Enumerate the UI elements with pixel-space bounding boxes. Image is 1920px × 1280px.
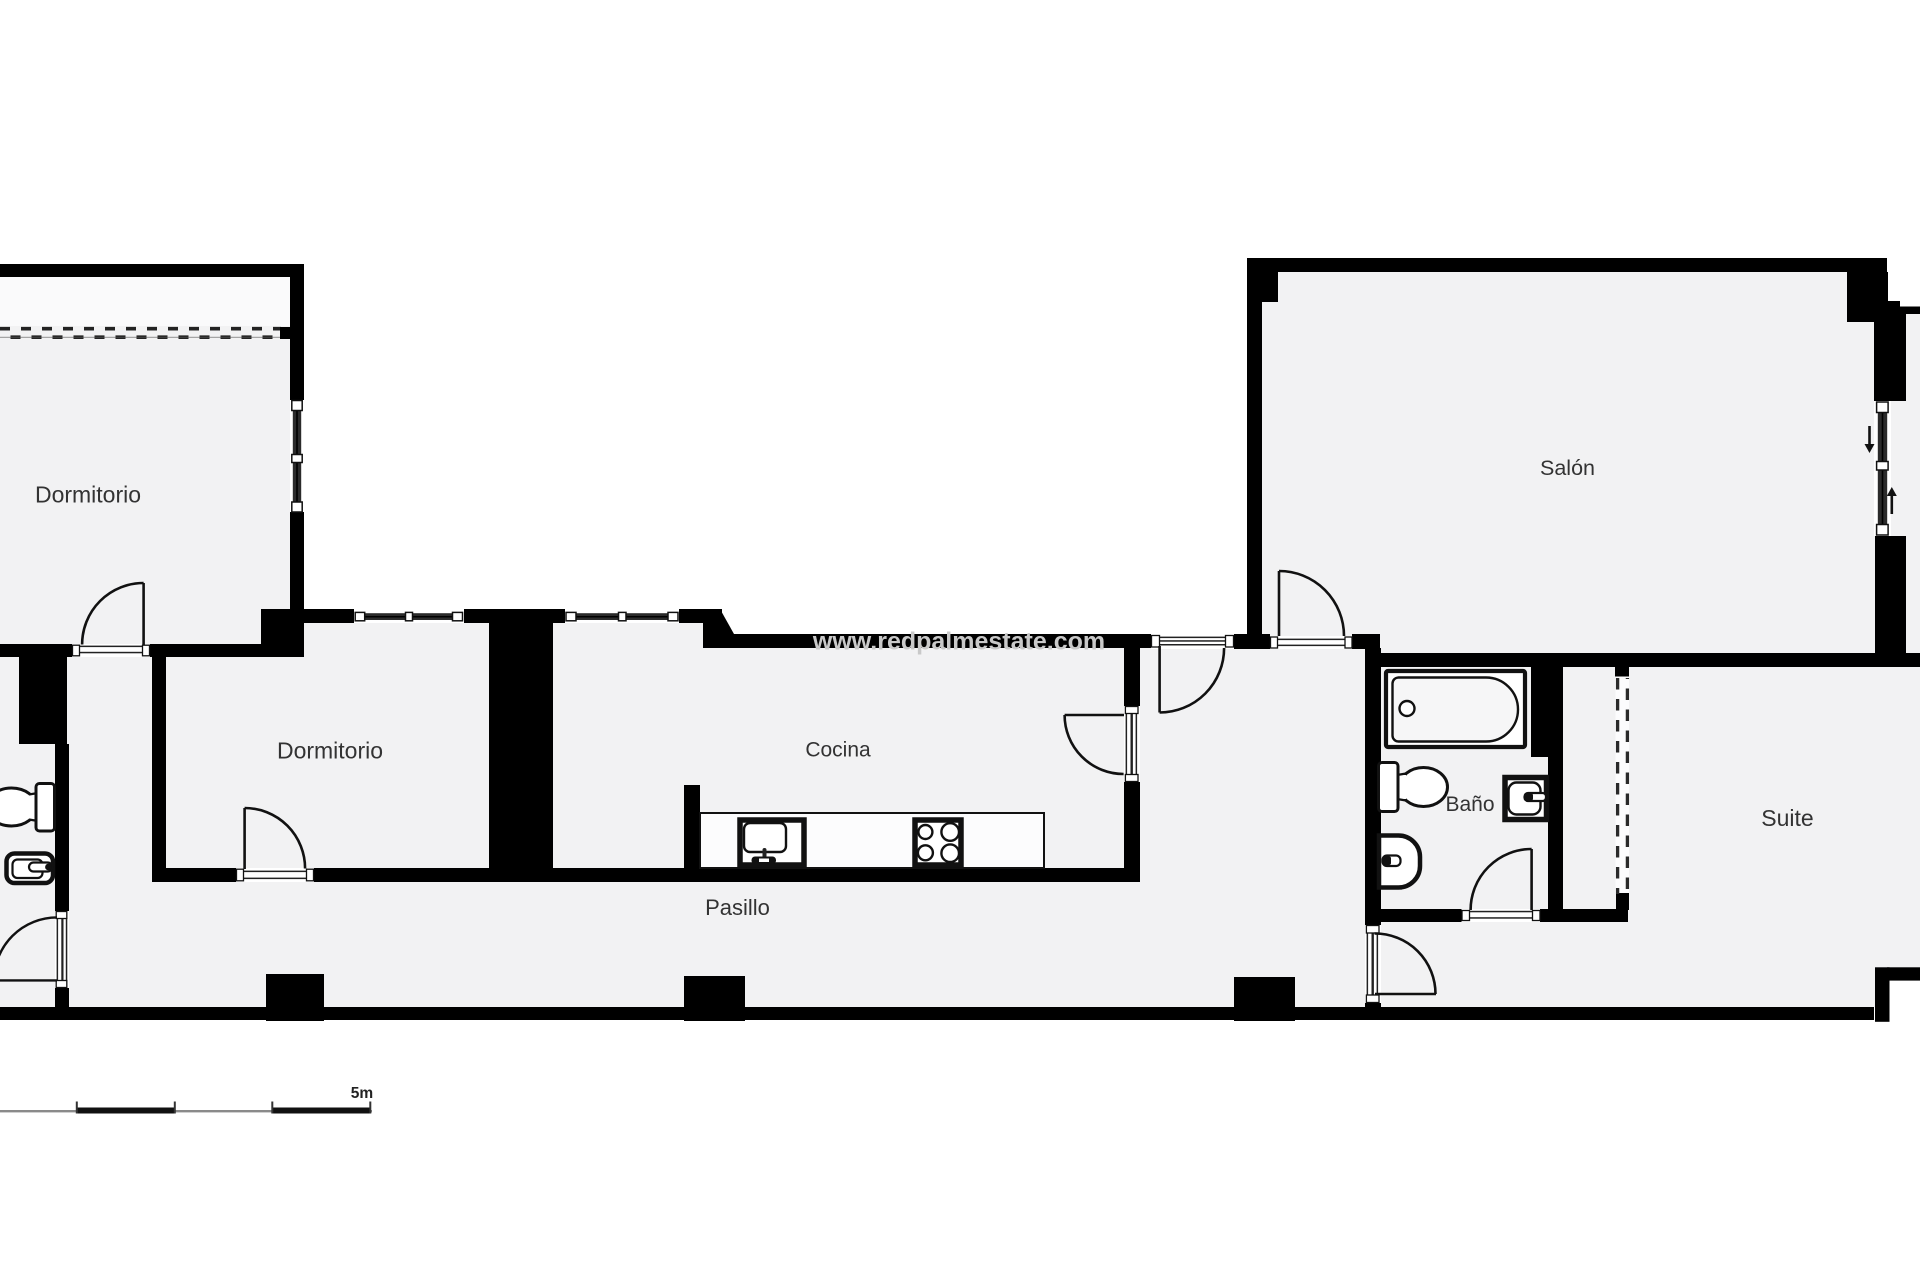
svg-text:Pasillo: Pasillo (705, 895, 770, 920)
svg-text:Suite: Suite (1761, 805, 1813, 831)
svg-text:Dormitorio: Dormitorio (35, 481, 141, 507)
svg-text:Salón: Salón (1540, 456, 1595, 480)
svg-text:www.redpalmestate.com: www.redpalmestate.com (812, 628, 1105, 656)
svg-text:Cocina: Cocina (805, 738, 871, 761)
svg-text:Baño: Baño (1445, 793, 1494, 816)
svg-text:Dormitorio: Dormitorio (277, 737, 383, 763)
svg-text:5m: 5m (351, 1085, 373, 1102)
